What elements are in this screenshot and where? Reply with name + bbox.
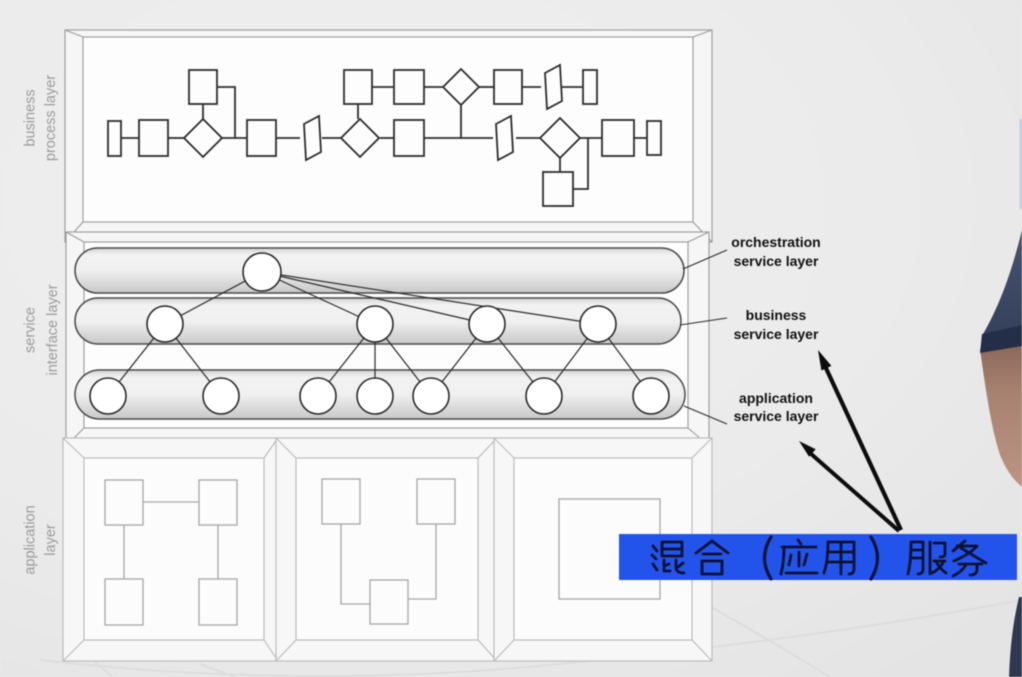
svg-text:layer: layer [43,524,59,556]
svg-text:service: service [23,307,39,353]
svg-text:application: application [739,390,813,406]
svg-text:service layer: service layer [734,253,819,269]
svg-text:business: business [23,89,39,146]
svg-text:orchestration: orchestration [731,234,820,250]
svg-text:service layer: service layer [734,326,819,342]
svg-text:interface layer: interface layer [45,284,61,375]
svg-text:process layer: process layer [43,75,59,161]
svg-text:service layer: service layer [734,408,819,424]
svg-text:application: application [23,505,39,574]
svg-text:business: business [746,307,807,323]
